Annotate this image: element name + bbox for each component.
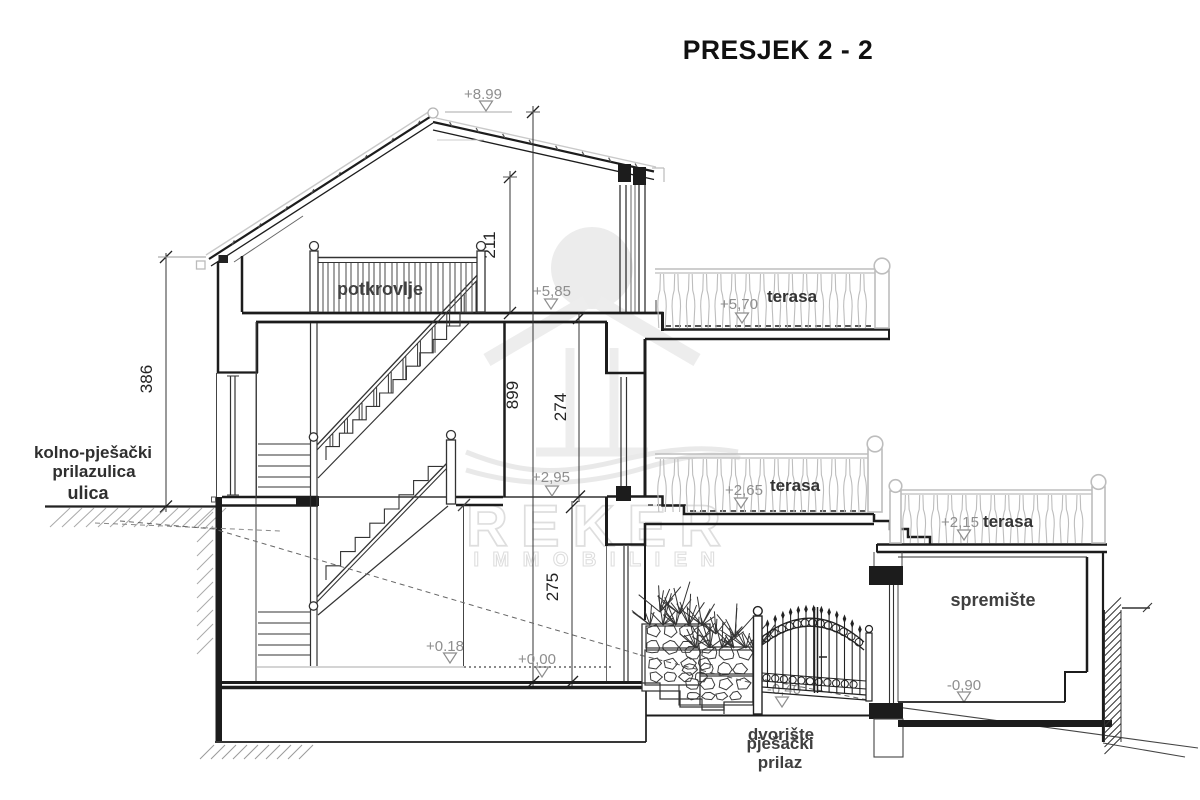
svg-text:899: 899 [503, 381, 522, 409]
svg-text:275: 275 [543, 573, 562, 601]
svg-text:pješački: pješački [746, 734, 813, 753]
svg-text:prilazulica: prilazulica [52, 462, 136, 481]
svg-text:terasa: terasa [767, 287, 818, 306]
svg-text:+2,65: +2,65 [725, 482, 763, 499]
svg-text:+2,95: +2,95 [532, 469, 570, 486]
svg-text:+5,70: +5,70 [720, 296, 758, 313]
svg-text:PRESJEK 2 - 2: PRESJEK 2 - 2 [683, 35, 874, 65]
svg-text:terasa: terasa [983, 512, 1034, 531]
svg-text:terasa: terasa [770, 476, 821, 495]
svg-text:386: 386 [137, 365, 156, 393]
svg-text:IMMOBILIEN: IMMOBILIEN [474, 549, 729, 571]
svg-text:kolno-pješački: kolno-pješački [34, 443, 152, 462]
svg-text:+5,85: +5,85 [533, 283, 571, 300]
svg-text:ulica: ulica [67, 483, 109, 503]
svg-text:prilaz: prilaz [758, 753, 802, 772]
svg-text:274: 274 [551, 393, 570, 421]
svg-text:spremište: spremište [950, 590, 1035, 610]
svg-text:+0,00: +0,00 [518, 651, 556, 668]
svg-text:+2,15: +2,15 [941, 514, 979, 531]
